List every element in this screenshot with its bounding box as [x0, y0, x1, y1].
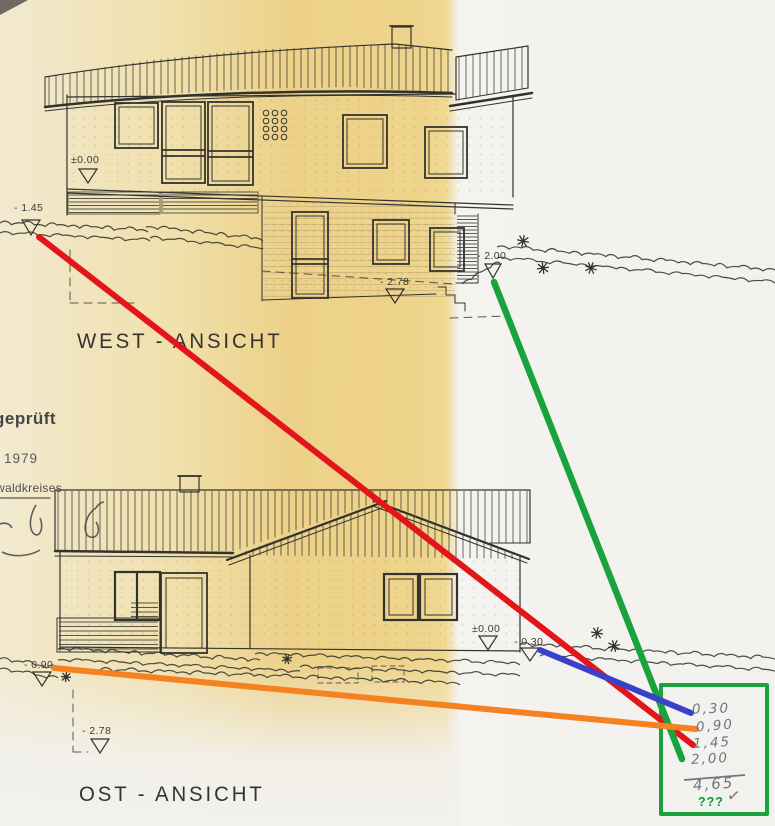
sum-row: 0,90 — [695, 716, 734, 735]
checkmark: ✓ — [726, 785, 742, 807]
question-marks: ??? — [698, 795, 724, 809]
annotation-line-blue — [540, 650, 691, 713]
sum-row: 0,30 — [692, 700, 731, 717]
annotation-layer — [0, 0, 775, 826]
scanned-plan-photo: geprüft 9. 1979 waldkreises WEST - ANSIC… — [0, 0, 775, 826]
annotation-line-green — [494, 282, 682, 759]
sum-row: 2,00 — [691, 750, 730, 768]
annotation-line-red — [39, 237, 693, 745]
